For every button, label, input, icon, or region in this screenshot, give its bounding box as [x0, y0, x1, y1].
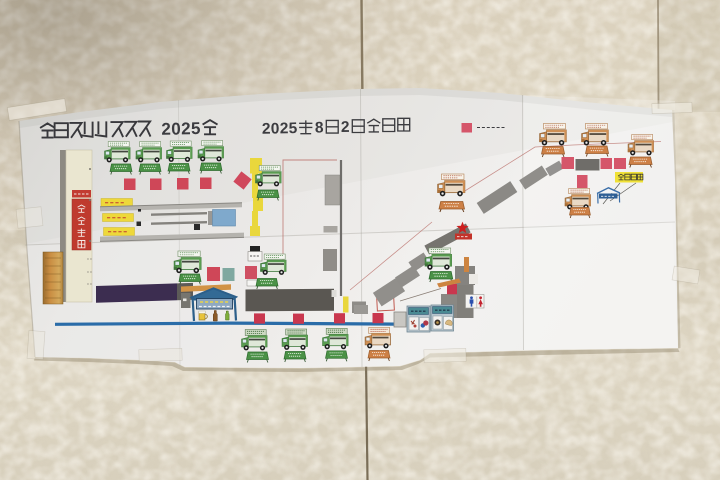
svg-text:8: 8	[315, 119, 324, 136]
svg-text:2025: 2025	[161, 119, 201, 139]
svg-text:2025: 2025	[262, 120, 298, 138]
svg-text:2: 2	[341, 119, 350, 136]
